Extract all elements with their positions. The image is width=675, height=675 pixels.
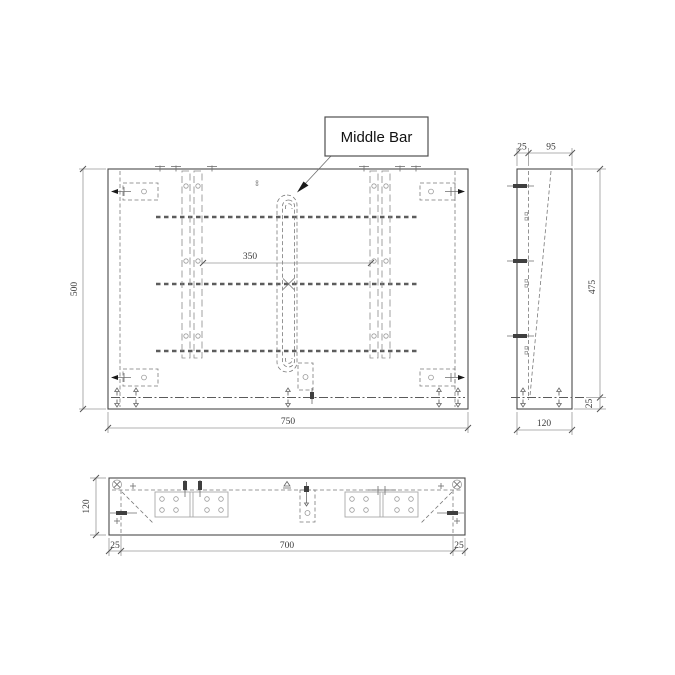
bolt-arrow-icon — [111, 375, 118, 380]
bottom-view: 120 25 700 25 — [82, 475, 468, 556]
dim-label-25-top: 25 — [517, 143, 527, 153]
corner-gusset-right — [421, 492, 452, 523]
dim-side-bottom-offset: 25 — [574, 398, 606, 413]
dim-label-25-bottom: 25 — [585, 399, 595, 409]
rail-sections — [525, 213, 528, 355]
dim-label-120-bottom: 120 — [82, 499, 92, 514]
side-bolts — [507, 184, 534, 338]
bolt-arrow-icon — [111, 189, 118, 194]
middle-bar-callout: Middle Bar — [297, 117, 428, 193]
leader-line — [303, 156, 331, 186]
dim-side-top: 25 95 — [514, 143, 575, 167]
reference-mark — [256, 181, 258, 186]
vertical-bar-left — [182, 171, 202, 358]
corner-cross-right — [453, 480, 462, 489]
corner-fastener-box-bl — [111, 369, 158, 386]
dim-front-height: 500 — [70, 166, 106, 412]
dim-label-500: 500 — [70, 282, 80, 297]
corner-fastener-box-tr — [420, 183, 465, 200]
dim-label-350: 350 — [243, 252, 258, 262]
dim-label-95: 95 — [546, 143, 556, 153]
bolt-symbol — [310, 392, 314, 399]
corner-fastener-box-br — [420, 369, 465, 386]
callout-label: Middle Bar — [341, 129, 413, 146]
dim-bottom-depth: 120 — [82, 475, 106, 538]
dim-label-120-side: 120 — [537, 419, 552, 429]
bolt-arrow-icon — [458, 375, 465, 380]
top-hook — [286, 204, 293, 209]
front-view: 500 750 350 — [70, 166, 471, 434]
side-view: 25 95 475 25 120 — [507, 143, 606, 436]
dim-side-depth: 120 — [514, 412, 575, 435]
dim-label-475: 475 — [588, 280, 598, 295]
technical-drawing: 500 750 350 Middle Bar — [0, 0, 675, 675]
drawing-canvas: 500 750 350 Middle Bar — [0, 0, 675, 675]
mounting-plate-right — [345, 486, 418, 517]
dim-label-25-right: 25 — [454, 541, 464, 551]
bolt-arrow-icon — [458, 189, 465, 194]
front-outline — [108, 169, 468, 409]
bottom-corner-bolts — [110, 483, 464, 524]
bottom-hook — [286, 358, 293, 363]
diagonal-brace — [530, 171, 551, 396]
center-bracket — [300, 482, 315, 522]
corner-fastener-box-tl — [111, 183, 158, 200]
side-outline — [517, 169, 572, 409]
center-top-mark — [283, 482, 291, 489]
bottom-outline — [109, 478, 465, 535]
dim-label-25-left: 25 — [110, 541, 120, 551]
corner-cross-left — [113, 480, 122, 489]
mounting-plate-left — [155, 480, 228, 517]
dim-label-700: 700 — [280, 541, 295, 551]
dim-bottom-widths: 25 700 25 — [106, 536, 468, 556]
leader-arrow-icon — [297, 182, 309, 193]
dim-front-width: 750 — [105, 412, 471, 433]
dim-side-height: 475 — [574, 166, 606, 401]
vertical-bar-right — [370, 171, 390, 358]
corner-gusset-left — [122, 492, 153, 523]
dim-label-750: 750 — [281, 417, 296, 427]
dim-middle-span: 350 — [200, 252, 374, 266]
